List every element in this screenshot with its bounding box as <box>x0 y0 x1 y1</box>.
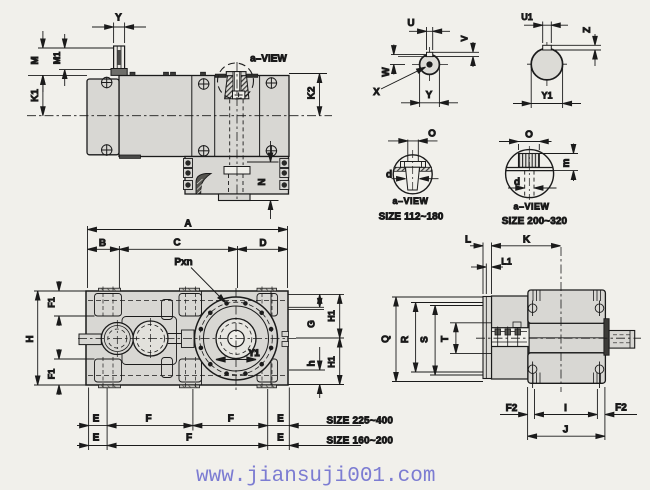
svg-text:D: D <box>259 238 266 249</box>
svg-text:O: O <box>428 129 436 140</box>
svg-text:www.jiansuji001.com: www.jiansuji001.com <box>196 465 435 488</box>
svg-text:H: H <box>25 335 36 342</box>
svg-text:F2: F2 <box>506 403 518 414</box>
svg-text:X: X <box>373 87 380 98</box>
svg-text:E: E <box>277 414 284 425</box>
svg-text:H1: H1 <box>327 356 337 368</box>
svg-text:Y: Y <box>115 13 122 24</box>
svg-text:a–VIEW: a–VIEW <box>392 196 428 206</box>
svg-text:m: m <box>561 158 572 167</box>
svg-text:V: V <box>460 35 470 41</box>
svg-text:T: T <box>440 336 451 342</box>
svg-text:SIZE 112~180: SIZE 112~180 <box>379 212 444 223</box>
svg-text:F: F <box>228 414 234 425</box>
svg-text:Y1: Y1 <box>541 91 552 101</box>
svg-text:O: O <box>525 130 533 141</box>
svg-text:F: F <box>186 433 192 444</box>
svg-text:I: I <box>564 403 567 414</box>
svg-text:a–VIEW: a–VIEW <box>513 202 549 212</box>
svg-text:G: G <box>307 320 318 328</box>
svg-text:E: E <box>277 433 284 444</box>
svg-text:SIZE 200~320: SIZE 200~320 <box>502 216 568 227</box>
svg-text:E: E <box>93 433 100 444</box>
svg-text:a–VIEW: a–VIEW <box>250 54 287 65</box>
svg-text:S: S <box>420 336 431 343</box>
svg-text:M1: M1 <box>52 52 62 65</box>
svg-text:F2: F2 <box>615 403 627 414</box>
svg-text:E: E <box>93 414 100 425</box>
svg-text:R: R <box>400 335 411 343</box>
svg-text:B: B <box>99 238 106 249</box>
svg-text:Pxn: Pxn <box>174 257 192 268</box>
svg-text:Y1: Y1 <box>248 348 259 358</box>
svg-text:K: K <box>523 235 531 246</box>
svg-text:K2: K2 <box>307 86 318 99</box>
svg-text:Q: Q <box>381 335 392 343</box>
svg-text:SIZE 160~200: SIZE 160~200 <box>327 436 394 447</box>
svg-text:A: A <box>184 219 191 230</box>
svg-text:F1: F1 <box>47 297 57 308</box>
svg-text:J: J <box>563 425 569 436</box>
svg-text:C: C <box>173 238 180 249</box>
svg-text:Z: Z <box>582 27 593 33</box>
svg-text:U1: U1 <box>521 12 533 22</box>
svg-text:W: W <box>381 67 392 77</box>
svg-text:Y: Y <box>426 90 433 101</box>
svg-text:L: L <box>465 235 471 246</box>
svg-text:d: d <box>386 170 392 181</box>
svg-text:K1: K1 <box>30 89 41 102</box>
svg-text:SIZE 225~400: SIZE 225~400 <box>327 416 394 427</box>
svg-text:U: U <box>407 18 414 29</box>
svg-text:L1: L1 <box>501 257 512 267</box>
svg-text:N: N <box>257 178 268 185</box>
svg-text:M: M <box>30 56 41 64</box>
svg-text:F: F <box>146 414 152 425</box>
svg-text:H1: H1 <box>327 310 337 322</box>
svg-text:h: h <box>307 360 318 366</box>
svg-text:F1: F1 <box>47 369 57 380</box>
svg-text:d: d <box>514 177 520 188</box>
